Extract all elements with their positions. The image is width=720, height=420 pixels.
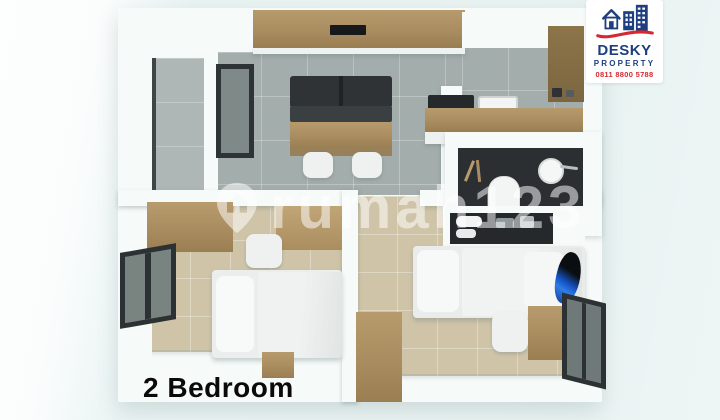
kitchen-counter xyxy=(425,108,583,132)
bedroom2-wardrobe xyxy=(356,312,402,402)
logo-subtitle-text: PROPERTY xyxy=(594,59,656,69)
sofa-back xyxy=(290,76,392,108)
bedroom2-corner-window xyxy=(562,293,606,390)
bed1-pillow xyxy=(216,276,254,352)
top-left-wall xyxy=(118,8,210,58)
living-room-window xyxy=(216,64,254,158)
agency-logo-card: DESKY PROPERTY 0811 8800 5788 xyxy=(586,0,663,83)
closet-towel-stack-2 xyxy=(456,229,476,238)
closet-item xyxy=(496,218,514,228)
bedroom1-chair xyxy=(246,234,282,268)
sofa-seat xyxy=(290,106,392,122)
bedroom2-bench xyxy=(528,306,564,360)
bedroom1-desk xyxy=(147,202,233,252)
dining-chair-2 xyxy=(352,152,382,178)
dining-table xyxy=(290,122,392,148)
unit-type-caption: 2 Bedroom xyxy=(143,372,294,404)
logo-brand-text: DESKY xyxy=(597,43,651,59)
listing-image-canvas: rumah123 DESKY PROPERTY 0811 xyxy=(0,0,720,420)
closet-item-2 xyxy=(520,216,534,228)
kitchen-small-appliance xyxy=(566,90,574,97)
dining-chair-1 xyxy=(303,152,333,178)
bedroom1-window xyxy=(120,243,176,329)
balcony-ledge xyxy=(253,48,465,54)
house-buildings-icon xyxy=(595,3,655,43)
bed1-duvet xyxy=(258,272,342,358)
entrance-hall-floor xyxy=(156,58,208,194)
top-mid-wall xyxy=(206,10,256,52)
top-right-wall xyxy=(462,12,550,48)
bed2-pillow-left xyxy=(417,250,459,312)
bedroom1-dresser xyxy=(276,206,342,250)
wash-basin xyxy=(538,158,564,184)
bedroom2-stool xyxy=(492,312,528,352)
entrance-wall-dark-edge xyxy=(152,58,156,194)
tv-on-balcony-ledge xyxy=(330,25,366,35)
logo-phone-number: 0811 8800 5788 xyxy=(595,69,653,80)
coffee-maker xyxy=(552,88,562,97)
closet-towel-stack xyxy=(456,216,482,227)
